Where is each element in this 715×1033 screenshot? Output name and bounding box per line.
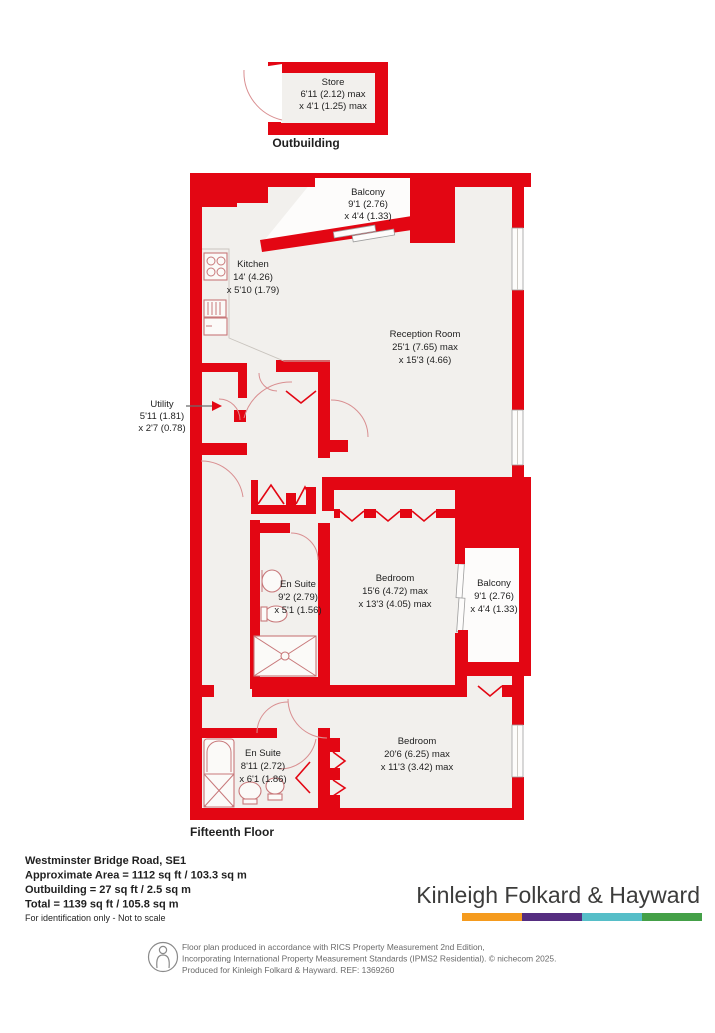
svg-text:x 5'10 (1.79): x 5'10 (1.79) xyxy=(227,285,280,296)
address-line: Westminster Bridge Road, SE1 xyxy=(25,855,186,867)
disclaimer-line2: Incorporating International Property Mea… xyxy=(182,954,556,964)
svg-text:x 5'1 (1.56): x 5'1 (1.56) xyxy=(274,605,321,616)
svg-text:14' (4.26): 14' (4.26) xyxy=(233,272,273,283)
total-line: Total = 1139 sq ft / 105.8 sq m xyxy=(25,899,179,911)
outbuilding-plan: Store 6'11 (2.12) max x 4'1 (1.25) max xyxy=(243,62,388,135)
balcony-right-name: Balcony xyxy=(477,578,511,589)
brand-bar-orange xyxy=(462,913,522,921)
ensuite-bottom-name: En Suite xyxy=(245,748,281,759)
reception-name: Reception Room xyxy=(390,329,461,340)
identification-note: For identification only - Not to scale xyxy=(25,913,166,923)
agent-name: Kinleigh Folkard & Hayward xyxy=(416,882,700,908)
svg-text:x 6'1 (1.86): x 6'1 (1.86) xyxy=(239,774,286,785)
svg-text:9'2 (2.79): 9'2 (2.79) xyxy=(278,592,318,603)
svg-text:x 11'3 (3.42) max: x 11'3 (3.42) max xyxy=(381,762,454,773)
floor-label: Fifteenth Floor xyxy=(190,825,274,839)
svg-text:15'6 (4.72) max: 15'6 (4.72) max xyxy=(362,586,428,597)
svg-text:8'11 (2.72): 8'11 (2.72) xyxy=(241,761,285,772)
balcony-top-name: Balcony xyxy=(351,187,385,198)
outbuilding-label: Outbuilding xyxy=(272,136,339,150)
bedroom-mid-name: Bedroom xyxy=(376,573,415,584)
brand-bar-teal xyxy=(582,913,642,921)
bedroom-bottom-name: Bedroom xyxy=(398,736,437,747)
main-plan: Balcony 9'1 (2.76) x 4'4 (1.33) Kitchen … xyxy=(138,173,531,820)
kitchen-name: Kitchen xyxy=(237,259,269,270)
svg-text:5'11 (1.81): 5'11 (1.81) xyxy=(140,411,184,422)
bath-icon xyxy=(204,739,234,807)
disclaimer-line3: Produced for Kinleigh Folkard & Hayward.… xyxy=(182,965,395,975)
approx-area-line: Approximate Area = 1112 sq ft / 103.3 sq… xyxy=(25,870,247,882)
hob-icon xyxy=(204,253,227,280)
summary-block: Westminster Bridge Road, SE1 Approximate… xyxy=(25,855,247,923)
svg-text:9'1 (2.76): 9'1 (2.76) xyxy=(348,199,388,210)
svg-text:x 2'7 (0.78): x 2'7 (0.78) xyxy=(138,423,185,434)
store-dim2: x 4'1 (1.25) max xyxy=(299,101,367,112)
radiator-icon xyxy=(204,300,226,317)
ensuite-mid-name: En Suite xyxy=(280,579,316,590)
svg-text:x 4'4 (1.33): x 4'4 (1.33) xyxy=(344,211,391,222)
svg-text:x 15'3 (4.66): x 15'3 (4.66) xyxy=(399,355,452,366)
agent-logo: Kinleigh Folkard & Hayward xyxy=(416,882,702,921)
sink-icon xyxy=(262,570,282,592)
floorplan-canvas: Store 6'11 (2.12) max x 4'1 (1.25) max O… xyxy=(0,0,715,1033)
floorplan-page: Store 6'11 (2.12) max x 4'1 (1.25) max O… xyxy=(0,0,715,1033)
person-icon xyxy=(149,943,178,972)
outbuilding-line: Outbuilding = 27 sq ft / 2.5 sq m xyxy=(25,884,191,896)
svg-text:20'6 (6.25) max: 20'6 (6.25) max xyxy=(384,749,450,760)
disclaimer-block: Floor plan produced in accordance with R… xyxy=(149,942,557,975)
svg-text:x 13'3 (4.05) max: x 13'3 (4.05) max xyxy=(358,599,431,610)
brand-bar-green xyxy=(642,913,702,921)
store-name: Store xyxy=(322,77,345,88)
svg-text:25'1 (7.65) max: 25'1 (7.65) max xyxy=(392,342,458,353)
store-dim1: 6'11 (2.12) max xyxy=(300,89,365,100)
svg-text:9'1 (2.76): 9'1 (2.76) xyxy=(474,591,514,602)
disclaimer-line1: Floor plan produced in accordance with R… xyxy=(182,942,485,952)
brand-bar-purple xyxy=(522,913,582,921)
utility-name: Utility xyxy=(150,399,173,410)
svg-text:x 4'4 (1.33): x 4'4 (1.33) xyxy=(470,604,517,615)
